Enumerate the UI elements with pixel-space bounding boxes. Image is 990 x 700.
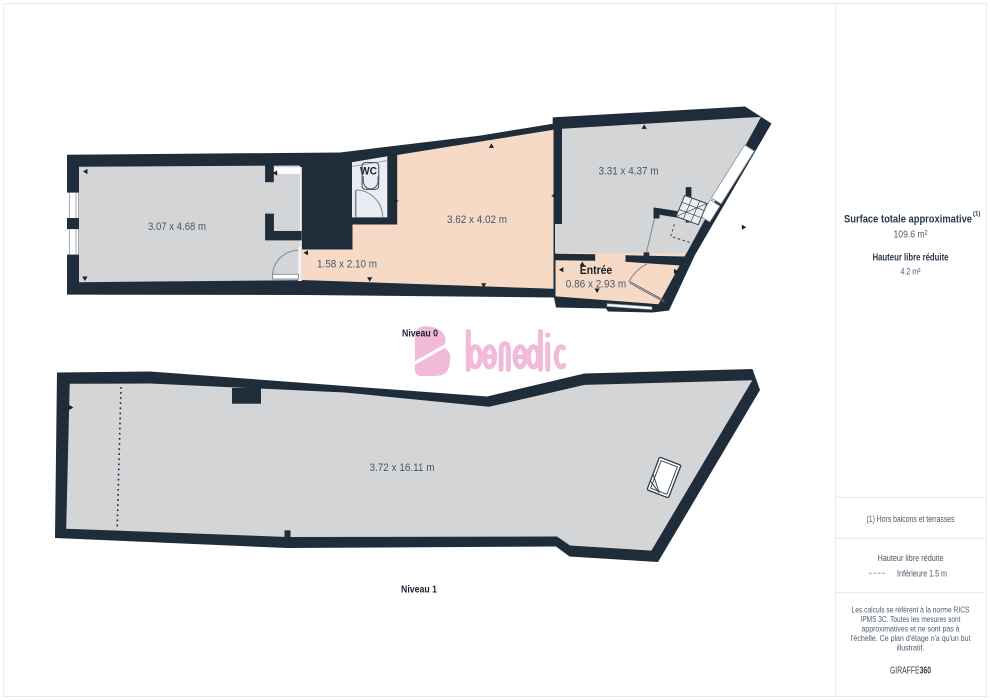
- svg-text:(1) Hors balcons et terrasses: (1) Hors balcons et terrasses: [867, 514, 955, 524]
- svg-text:Niveau 1: Niveau 1: [401, 584, 437, 595]
- svg-text:WC: WC: [360, 166, 377, 178]
- svg-text:Inférieure 1.5 m: Inférieure 1.5 m: [897, 569, 947, 579]
- svg-text:3.62 x 4.02 m: 3.62 x 4.02 m: [447, 214, 507, 226]
- svg-text:3.07 x 4.68 m: 3.07 x 4.68 m: [148, 221, 206, 233]
- svg-text:3.31 x 4.37 m: 3.31 x 4.37 m: [599, 166, 659, 178]
- svg-text:Hauteur libre réduite: Hauteur libre réduite: [873, 253, 949, 264]
- svg-text:GIRAFFE360: GIRAFFE360: [890, 666, 931, 677]
- svg-text:Niveau 0: Niveau 0: [402, 329, 438, 340]
- svg-text:109.6 m²: 109.6 m²: [894, 229, 928, 241]
- svg-text:IPMS 3C. Toutes les mesures so: IPMS 3C. Toutes les mesures sont: [861, 614, 961, 624]
- svg-text:approximatives et ne sont pas: approximatives et ne sont pas à: [862, 624, 960, 634]
- svg-text:(1): (1): [973, 212, 980, 218]
- svg-text:l'échelle. Ce plan d'étage n'a: l'échelle. Ce plan d'étage n'a qu'un but: [851, 633, 971, 643]
- svg-text:illustratif.: illustratif.: [897, 643, 925, 653]
- svg-text:Entrée: Entrée: [580, 263, 613, 277]
- svg-text:Surface totale approximative: Surface totale approximative: [844, 214, 972, 226]
- svg-text:Hauteur libre réduite: Hauteur libre réduite: [878, 553, 944, 563]
- svg-text:1.58 x 2.10 m: 1.58 x 2.10 m: [317, 259, 377, 271]
- svg-text:Les calculs se réfèrent à la n: Les calculs se réfèrent à la norme RICS: [852, 605, 970, 615]
- svg-text:4.2 m²: 4.2 m²: [901, 267, 921, 278]
- svg-text:3.72 x 16.11 m: 3.72 x 16.11 m: [370, 462, 435, 474]
